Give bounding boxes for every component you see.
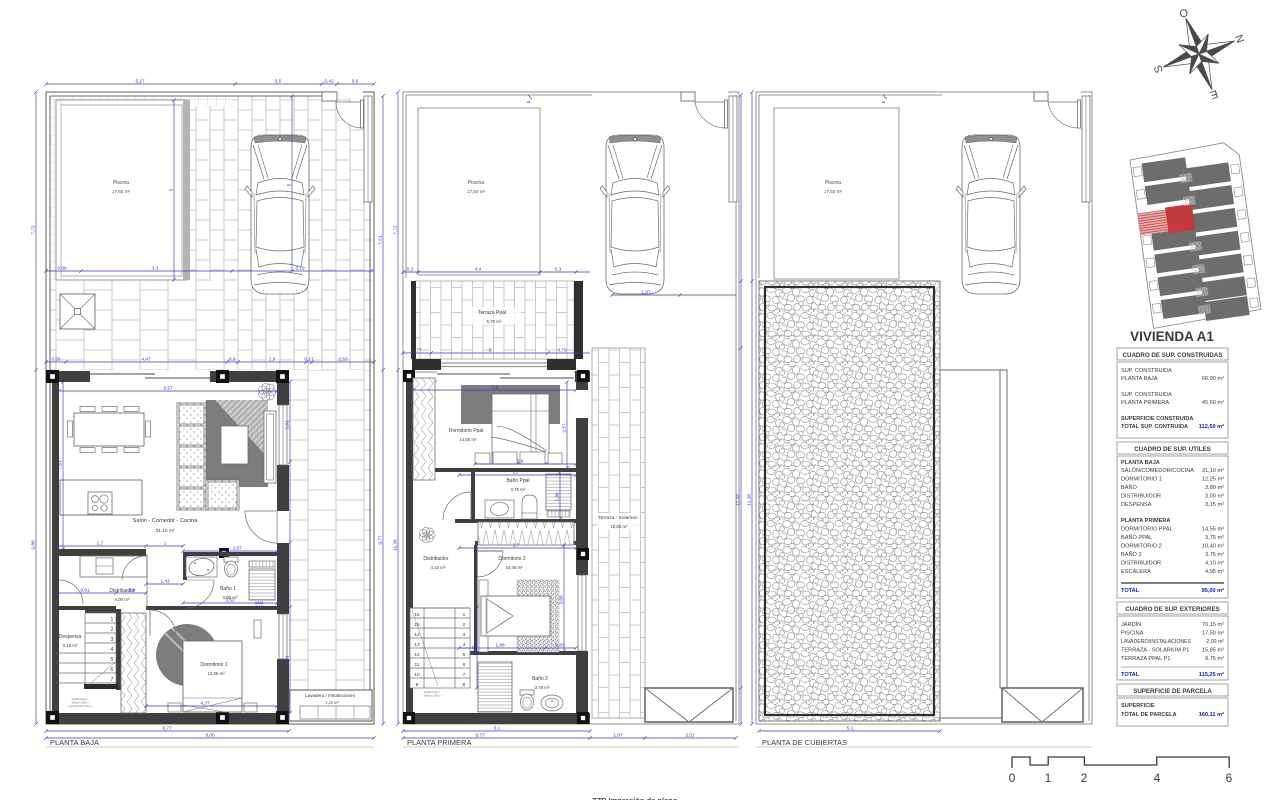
svg-text:160,11 m²: 160,11 m²: [1199, 711, 1224, 718]
svg-text:3,15 m²: 3,15 m²: [1205, 502, 1224, 508]
svg-text:0: 0: [1009, 771, 1016, 785]
svg-text:7,61: 7,61: [58, 460, 63, 470]
svg-text:0,42: 0,42: [324, 79, 334, 84]
svg-text:1,43: 1,43: [160, 579, 170, 584]
svg-text:5,1: 5,1: [494, 726, 501, 731]
svg-text:2: 2: [463, 622, 466, 628]
svg-text:Piscina: Piscina: [825, 180, 841, 186]
svg-text:SUPERFICIE CONSTRUIDA: SUPERFICIE CONSTRUIDA: [1121, 416, 1193, 422]
svg-text:PLANTA PRIMERA: PLANTA PRIMERA: [1121, 518, 1170, 524]
svg-text:13: 13: [414, 642, 420, 648]
svg-text:1: 1: [164, 541, 167, 546]
svg-text:1,88: 1,88: [495, 643, 505, 648]
svg-text:3,75 m²: 3,75 m²: [1205, 535, 1224, 541]
svg-text:DORMITORIO 2: DORMITORIO 2: [1121, 544, 1162, 550]
svg-text:SALÓN/COMEDOR/COCINA: SALÓN/COMEDOR/COCINA: [1121, 467, 1194, 474]
svg-text:5: 5: [463, 652, 466, 658]
svg-text:PLANTA BAJA: PLANTA BAJA: [1121, 376, 1158, 382]
svg-text:17,50 m²: 17,50 m²: [1202, 631, 1224, 637]
svg-text:CUADRO DE SUP. UTILES: CUADRO DE SUP. UTILES: [1134, 446, 1211, 453]
svg-text:Huella interm.: Huella interm.: [72, 697, 88, 701]
svg-text:ZZB Impresión de plano: ZZB Impresión de plano: [592, 796, 678, 800]
svg-text:Tabica 0,185 m: Tabica 0,185 m: [423, 694, 441, 698]
svg-text:9: 9: [416, 682, 419, 688]
svg-text:2,81: 2,81: [285, 655, 290, 665]
svg-text:1,9: 1,9: [269, 357, 276, 362]
svg-text:4: 4: [111, 647, 114, 653]
svg-text:PLANTA BAJA: PLANTA BAJA: [1121, 460, 1160, 466]
svg-text:66,90 m²: 66,90 m²: [1202, 376, 1224, 382]
svg-text:15,85 m²: 15,85 m²: [1202, 648, 1224, 654]
svg-text:2,57: 2,57: [562, 423, 567, 433]
svg-text:3: 3: [111, 637, 114, 643]
svg-text:CUADRO DE SUP. EXTERIORES: CUADRO DE SUP. EXTERIORES: [1125, 606, 1219, 613]
svg-text:3,8: 3,8: [517, 459, 524, 464]
svg-text:PISCINA: PISCINA: [1121, 631, 1144, 637]
svg-text:5,27: 5,27: [135, 79, 145, 84]
svg-text:CUADRO DE SUP. CONSTRUIDAS: CUADRO DE SUP. CONSTRUIDAS: [1123, 352, 1223, 359]
svg-text:10,40 m²: 10,40 m²: [505, 565, 523, 570]
svg-text:8,06: 8,06: [205, 733, 215, 738]
svg-text:45,60 m²: 45,60 m²: [1202, 400, 1224, 406]
svg-text:1,3: 1,3: [285, 496, 290, 503]
svg-text:LAVADERO/INSTALACIONES: LAVADERO/INSTALACIONES: [1121, 639, 1192, 645]
svg-text:3,5: 3,5: [275, 79, 282, 84]
svg-text:12,38: 12,38: [747, 494, 752, 506]
svg-text:12: 12: [414, 652, 420, 658]
svg-text:1: 1: [111, 617, 114, 623]
svg-text:95,00 m²: 95,00 m²: [1202, 587, 1225, 594]
svg-text:0,79: 0,79: [557, 348, 567, 353]
svg-text:DISTRIBUIDOR: DISTRIBUIDOR: [1121, 494, 1161, 500]
svg-text:0,6: 0,6: [352, 79, 359, 84]
svg-text:TOTAL DE PARCELA: TOTAL DE PARCELA: [1121, 712, 1177, 718]
svg-text:Salón - Comedor - Cocina: Salón - Comedor - Cocina: [133, 518, 199, 524]
svg-text:3,81: 3,81: [285, 420, 290, 430]
svg-text:TERRAZA PPAL P1: TERRAZA PPAL P1: [1121, 656, 1170, 662]
svg-text:DUO: DUO: [255, 605, 263, 609]
svg-text:3,68: 3,68: [559, 595, 564, 605]
svg-text:Tabica 0,185 m: Tabica 0,185 m: [71, 701, 89, 705]
svg-text:17,50 m²: 17,50 m²: [467, 189, 486, 194]
svg-text:0,3: 0,3: [229, 357, 236, 362]
svg-text:2,41: 2,41: [285, 570, 290, 580]
svg-text:3: 3: [463, 632, 466, 638]
svg-text:TERRAZA - SOLARIUM P1: TERRAZA - SOLARIUM P1: [1121, 648, 1189, 654]
svg-text:BAÑO PPAL: BAÑO PPAL: [1121, 534, 1152, 541]
svg-text:Dormitorio 1: Dormitorio 1: [200, 662, 227, 668]
svg-text:0,3: 0,3: [555, 267, 562, 272]
svg-text:DORMITORIO 1: DORMITORIO 1: [1121, 477, 1162, 483]
svg-text:2: 2: [1081, 771, 1088, 785]
svg-text:DISTRIBUIDOR: DISTRIBUIDOR: [1121, 561, 1161, 567]
svg-text:17,50 m²: 17,50 m²: [824, 189, 843, 194]
svg-text:15: 15: [414, 622, 420, 628]
svg-text:0,96: 0,96: [57, 266, 67, 271]
svg-text:1,87: 1,87: [613, 733, 623, 738]
svg-text:5: 5: [489, 348, 492, 353]
svg-text:10: 10: [414, 672, 420, 678]
svg-text:Dormitorio Ppal: Dormitorio Ppal: [449, 428, 483, 434]
svg-text:1: 1: [463, 612, 466, 618]
svg-text:5: 5: [111, 657, 114, 663]
svg-text:7,72: 7,72: [31, 225, 36, 235]
svg-text:31,10 m²: 31,10 m²: [156, 528, 175, 534]
svg-text:PLANTA PRIMERA: PLANTA PRIMERA: [407, 738, 471, 747]
svg-text:SUPERFICIE: SUPERFICIE: [1121, 703, 1155, 709]
svg-text:PLANTA BAJA: PLANTA BAJA: [50, 738, 99, 747]
svg-text:12,95 m²: 12,95 m²: [207, 671, 225, 676]
svg-text:0,3: 0,3: [407, 267, 414, 272]
svg-text:11,38: 11,38: [393, 539, 398, 551]
svg-text:2: 2: [111, 627, 114, 633]
svg-text:14,55 m²: 14,55 m²: [459, 437, 477, 442]
svg-text:6,5: 6,5: [492, 385, 499, 390]
svg-text:6: 6: [111, 667, 114, 673]
svg-text:2,7: 2,7: [97, 541, 104, 546]
svg-text:Huella 0,28 m: Huella 0,28 m: [424, 690, 440, 694]
svg-text:15,85 m²: 15,85 m²: [610, 524, 628, 529]
svg-text:0,81: 0,81: [80, 588, 90, 593]
svg-text:3,00 m²: 3,00 m²: [115, 597, 130, 602]
svg-text:9,88: 9,88: [31, 540, 36, 550]
svg-text:6: 6: [1226, 771, 1233, 785]
svg-text:7,61: 7,61: [378, 235, 383, 245]
svg-text:TOTAL: TOTAL: [1121, 672, 1140, 678]
svg-text:7: 7: [111, 677, 114, 683]
svg-text:1,98: 1,98: [555, 492, 560, 502]
svg-text:0,77: 0,77: [412, 348, 422, 353]
svg-text:4,4: 4,4: [475, 267, 482, 272]
svg-text:Distribuidor: Distribuidor: [423, 556, 449, 562]
svg-text:3,3: 3,3: [152, 266, 159, 271]
svg-text:9,75 m²: 9,75 m²: [1205, 656, 1224, 662]
svg-text:TOTAL SUP. CONTRUIDA: TOTAL SUP. CONTRUIDA: [1121, 424, 1188, 430]
svg-text:Terraza - Solarium: Terraza - Solarium: [598, 515, 637, 521]
svg-text:8: 8: [463, 682, 466, 688]
svg-text:7: 7: [463, 672, 466, 678]
svg-text:2,00 m²: 2,00 m²: [1206, 639, 1224, 645]
svg-text:9,77: 9,77: [378, 535, 383, 545]
svg-text:TOTAL: TOTAL: [1121, 588, 1140, 594]
svg-text:10,40 m²: 10,40 m²: [1202, 544, 1224, 550]
svg-text:2,53: 2,53: [338, 357, 348, 362]
svg-text:17,60 m²: 17,60 m²: [112, 189, 131, 194]
svg-text:DESPENSA: DESPENSA: [1121, 502, 1152, 508]
svg-text:Baño 1: Baño 1: [220, 586, 236, 592]
svg-text:2,7: 2,7: [513, 543, 520, 548]
svg-text:BAÑO: BAÑO: [1121, 484, 1138, 491]
svg-text:9,75 m²: 9,75 m²: [487, 319, 502, 324]
svg-text:SUP. CONSTRUIDA: SUP. CONSTRUIDA: [1121, 392, 1172, 398]
svg-text:12,38: 12,38: [736, 494, 741, 506]
svg-text:ESCALERA: ESCALERA: [1121, 569, 1151, 575]
svg-text:6,77: 6,77: [475, 733, 485, 738]
svg-text:2,51: 2,51: [685, 733, 695, 738]
svg-text:4,47: 4,47: [141, 357, 151, 362]
svg-text:5,19: 5,19: [295, 266, 305, 271]
svg-text:Terraza Ppal: Terraza Ppal: [478, 310, 506, 316]
svg-text:Piscina: Piscina: [468, 180, 484, 186]
svg-text:3,75 m²: 3,75 m²: [511, 487, 526, 492]
svg-text:3,52: 3,52: [225, 598, 235, 603]
svg-text:1,98: 1,98: [472, 645, 477, 655]
svg-text:BAÑO 2: BAÑO 2: [1121, 551, 1142, 558]
svg-text:DORMITORIO PPAL: DORMITORIO PPAL: [1121, 527, 1173, 533]
svg-text:4,95 m²: 4,95 m²: [1205, 569, 1224, 575]
svg-text:2,87: 2,87: [232, 546, 242, 551]
svg-text:Lavadero / Instalaciones: Lavadero / Instalaciones: [305, 693, 356, 698]
svg-text:Piscina: Piscina: [113, 180, 129, 186]
svg-text:6,57: 6,57: [163, 386, 173, 391]
svg-text:11: 11: [415, 662, 420, 668]
svg-text:0,9: 0,9: [129, 588, 136, 593]
svg-text:Despensa: Despensa: [59, 634, 82, 640]
svg-text:3,80 m²: 3,80 m²: [1205, 485, 1224, 491]
svg-text:Baño Ppal: Baño Ppal: [506, 478, 529, 484]
svg-text:2,20 m²: 2,20 m²: [325, 700, 339, 705]
svg-text:3,75 m²: 3,75 m²: [535, 685, 550, 690]
svg-text:2,7: 2,7: [513, 470, 520, 475]
svg-text:0,17: 0,17: [304, 357, 314, 362]
svg-text:Baño 2: Baño 2: [532, 676, 548, 682]
svg-text:0,83: 0,83: [555, 643, 565, 648]
svg-text:4: 4: [463, 642, 466, 648]
svg-text:5: 5: [287, 183, 292, 186]
svg-text:14,55 m²: 14,55 m²: [1202, 527, 1224, 533]
svg-text:112,50 m²: 112,50 m²: [1199, 423, 1224, 430]
svg-text:5,1: 5,1: [847, 726, 854, 731]
svg-text:70,15 m²: 70,15 m²: [1202, 622, 1224, 628]
svg-text:4: 4: [1154, 771, 1161, 785]
svg-text:6,77: 6,77: [162, 726, 172, 731]
svg-text:31,10 m²: 31,10 m²: [1202, 468, 1224, 474]
svg-text:4,10 m²: 4,10 m²: [431, 565, 446, 570]
svg-text:3,75 m²: 3,75 m²: [1205, 552, 1224, 558]
svg-text:115,25 m²: 115,25 m²: [1199, 671, 1224, 678]
svg-text:0,56: 0,56: [51, 357, 61, 362]
svg-text:VIVIENDA A1: VIVIENDA A1: [1130, 329, 1214, 344]
svg-text:4,37: 4,37: [200, 701, 210, 706]
svg-text:Contrahuella 0,28 m: Contrahuella 0,28 m: [68, 704, 91, 708]
svg-text:4,10 m²: 4,10 m²: [1205, 561, 1224, 567]
svg-text:3,00 m²: 3,00 m²: [1205, 494, 1224, 500]
svg-text:JARDÍN: JARDÍN: [1121, 621, 1141, 628]
svg-text:1: 1: [1045, 771, 1052, 785]
svg-text:1,87: 1,87: [641, 290, 651, 295]
svg-text:PLANTA PRIMERA: PLANTA PRIMERA: [1121, 400, 1169, 406]
svg-text:3,15 m²: 3,15 m²: [63, 643, 78, 648]
svg-text:6: 6: [463, 662, 466, 668]
svg-text:5: 5: [169, 188, 174, 191]
svg-text:7,72: 7,72: [393, 225, 398, 235]
svg-text:SUP. CONSTRUIDA: SUP. CONSTRUIDA: [1121, 368, 1172, 374]
svg-text:SUPERFICIE DE PARCELA: SUPERFICIE DE PARCELA: [1133, 688, 1212, 695]
svg-text:PLANTA DE CUBIERTAS: PLANTA DE CUBIERTAS: [762, 738, 847, 747]
svg-text:16: 16: [414, 612, 420, 618]
svg-text:12,25 m²: 12,25 m²: [1202, 477, 1224, 483]
svg-text:14: 14: [414, 632, 420, 638]
